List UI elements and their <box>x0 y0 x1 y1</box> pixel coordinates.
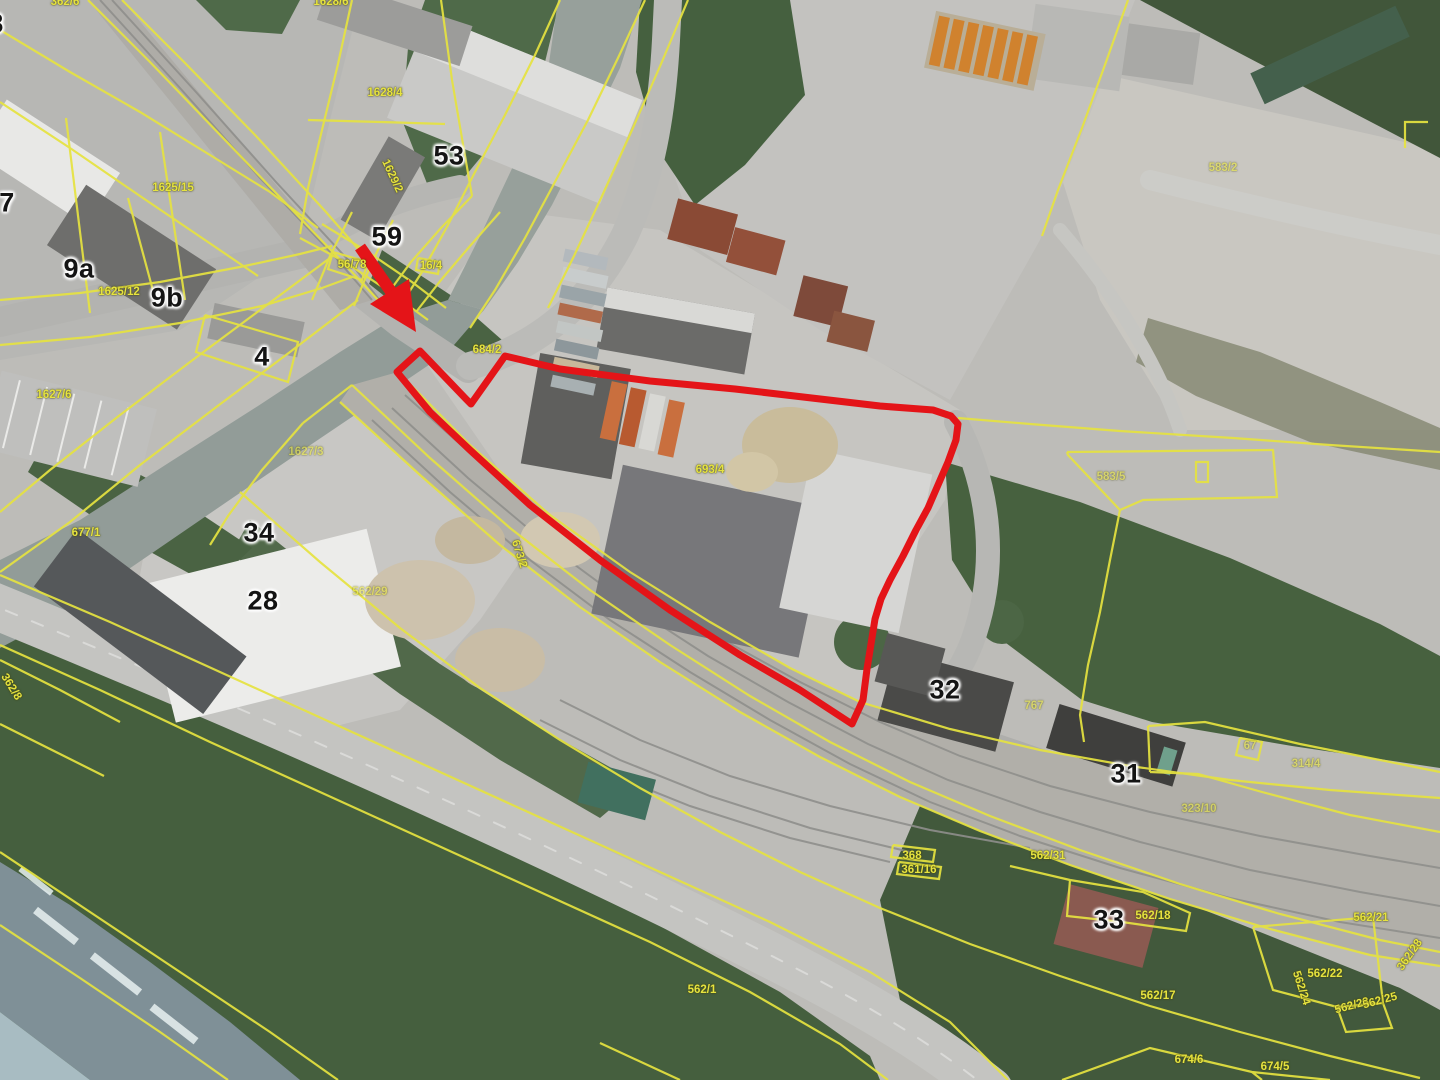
aerial-map: 79a9b45359342832313381625/151625/121628/… <box>0 0 1440 1080</box>
aerial-photo <box>0 0 1440 1080</box>
